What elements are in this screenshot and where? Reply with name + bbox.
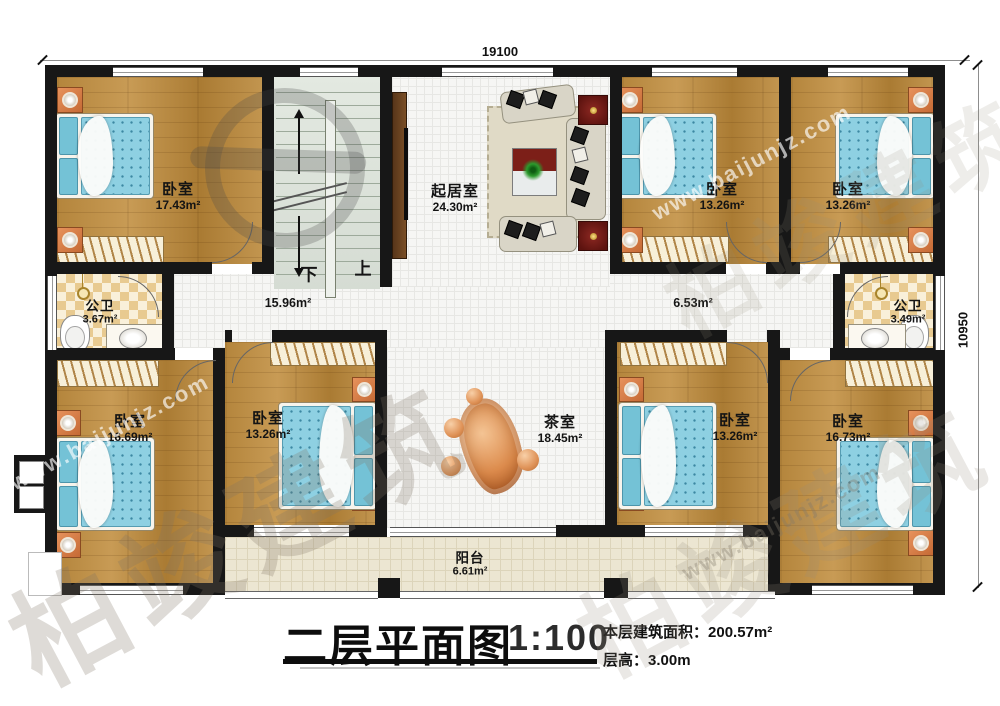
wall-segment <box>743 525 780 537</box>
accent-mat <box>578 95 608 125</box>
sink-basin-icon <box>861 328 889 349</box>
dimension-line-right <box>978 65 979 588</box>
room-name: 起居室 <box>431 184 479 201</box>
wall-segment <box>252 262 274 274</box>
bed <box>836 437 935 531</box>
wall-segment <box>45 262 212 274</box>
room-label-bedroom-bl: 卧室 16.69m² <box>108 414 153 444</box>
window <box>113 67 203 77</box>
stair-up-label: 上 <box>355 255 372 280</box>
nightstand <box>908 227 934 253</box>
room-name: 公卫 <box>891 298 926 313</box>
title-underline-shadow <box>300 667 600 669</box>
wall-segment <box>766 262 800 274</box>
room-name: 卧室 <box>246 411 291 428</box>
bed <box>618 402 717 510</box>
wall-segment <box>605 330 617 537</box>
wall-segment <box>610 65 622 274</box>
room-label-bedroom-tr2: 卧室 13.26m² <box>826 182 871 212</box>
window <box>828 67 908 77</box>
wardrobe <box>270 342 377 366</box>
floor-height-value: 3.00m <box>648 652 691 669</box>
wardrobe <box>57 360 159 387</box>
bed <box>55 437 155 531</box>
room-label-bedroom-br2: 卧室 16.73m² <box>826 414 871 444</box>
floor-area-label: 本层建筑面积： <box>603 624 708 641</box>
room-area: 17.43m² <box>156 199 201 212</box>
nightstand <box>908 87 934 113</box>
stair-arrow-up <box>298 112 300 174</box>
bed-pillows <box>912 441 931 527</box>
bed-pillows <box>354 406 373 506</box>
drawing-title: 二层平面图 <box>283 610 513 674</box>
wall-segment <box>779 65 791 274</box>
room-label-bedroom-b2: 卧室 13.26m² <box>246 411 291 441</box>
room-label-bedroom-tr1: 卧室 13.26m² <box>700 182 745 212</box>
room-label-balcony: 阳台 6.61m² <box>453 550 488 577</box>
nightstand <box>619 377 644 402</box>
sink-basin-icon <box>119 328 147 349</box>
room-area: 13.26m² <box>826 199 871 212</box>
room-name: 卧室 <box>700 182 745 199</box>
wall-segment <box>767 330 780 342</box>
room-label-tea-room: 茶室 18.45m² <box>538 415 583 445</box>
room-label-living: 起居室 24.30m² <box>431 184 479 214</box>
flue-box <box>19 486 44 509</box>
stair-down-label: 下 <box>301 261 318 286</box>
bed-sheet <box>319 405 354 507</box>
bed <box>55 113 154 199</box>
balcony-railing <box>628 591 775 599</box>
room-name: 卧室 <box>713 413 758 430</box>
wall-segment <box>162 274 174 352</box>
stone-stool <box>517 449 539 471</box>
room-name: 茶室 <box>538 415 583 432</box>
room-area: 24.30m² <box>431 201 479 214</box>
room-area: 16.73m² <box>826 431 871 444</box>
stone-stool <box>466 388 483 405</box>
corridor-area-right: 6.53m² <box>673 296 713 310</box>
exterior-step <box>28 552 62 596</box>
window <box>645 527 743 537</box>
window <box>47 276 57 350</box>
window <box>80 585 183 595</box>
drawing-scale: 1:100 <box>508 617 610 659</box>
room-area: 16.69m² <box>108 431 153 444</box>
nightstand <box>55 410 81 436</box>
window <box>254 527 349 537</box>
balcony-column <box>604 578 628 598</box>
room-label-bath-right: 公卫 3.49m² <box>891 298 926 325</box>
wall-segment <box>272 330 387 342</box>
bed-pillows <box>621 117 640 195</box>
accent-mat <box>578 221 608 251</box>
balcony-column <box>378 578 400 598</box>
wall-segment <box>833 274 845 352</box>
wall-segment <box>262 65 274 274</box>
plant-icon <box>522 159 544 181</box>
floor-area-info: 本层建筑面积：200.57m² <box>603 621 772 642</box>
nightstand <box>352 377 377 402</box>
bed-sheet <box>78 440 113 528</box>
wall-segment <box>840 262 945 274</box>
flue-box <box>19 461 44 484</box>
corridor-area-left: 15.96m² <box>265 296 312 310</box>
wall-segment <box>610 262 726 274</box>
wall-segment <box>768 330 780 595</box>
bed-sheet <box>78 116 113 197</box>
nightstand <box>908 530 934 556</box>
wall-segment <box>45 348 175 360</box>
nightstand <box>57 87 83 113</box>
window <box>300 67 358 77</box>
wardrobe <box>845 360 935 387</box>
bed-pillows <box>59 117 78 195</box>
room-name: 卧室 <box>108 414 153 431</box>
window <box>812 585 913 595</box>
wall-segment <box>605 330 727 342</box>
room-name: 卧室 <box>826 414 871 431</box>
nightstand <box>57 227 83 253</box>
room-area: 3.49m² <box>891 313 926 325</box>
nightstand <box>908 410 934 436</box>
room-label-bedroom-br1: 卧室 13.26m² <box>713 413 758 443</box>
room-label-bath-left: 公卫 3.67m² <box>83 298 118 325</box>
stair-rail <box>325 100 336 298</box>
dimension-width: 19100 <box>482 44 518 59</box>
room-name: 阳台 <box>453 550 488 565</box>
bed <box>278 402 377 510</box>
stone-stool <box>444 418 464 438</box>
window <box>442 67 553 77</box>
wall-segment <box>380 65 392 287</box>
room-name: 卧室 <box>156 182 201 199</box>
floor-height-label: 层高： <box>603 652 648 669</box>
wall-segment <box>213 525 254 537</box>
stair-arrowhead <box>294 104 304 118</box>
room-area: 3.67m² <box>83 313 118 325</box>
room-area: 13.26m² <box>246 428 291 441</box>
floor-area-value: 200.57m² <box>708 624 772 641</box>
wall-segment <box>375 330 387 537</box>
wall-segment <box>225 330 232 342</box>
room-area: 13.26m² <box>700 199 745 212</box>
wall-segment <box>775 348 790 360</box>
bed-sheet <box>640 116 675 197</box>
wall-segment <box>830 348 945 360</box>
lamp-cord <box>82 274 83 288</box>
dimension-height: 10950 <box>956 312 971 348</box>
dimension-line-top <box>40 60 970 61</box>
balcony-floor <box>225 537 775 593</box>
wall-segment <box>605 525 645 537</box>
bed-pillows <box>622 406 641 506</box>
bed-pillows <box>912 117 931 195</box>
room-area: 13.26m² <box>713 430 758 443</box>
bed-sheet <box>641 405 676 507</box>
room-area: 18.45m² <box>538 432 583 445</box>
floor-height-info: 层高：3.00m <box>603 649 691 670</box>
room-label-bedroom-tl: 卧室 17.43m² <box>156 182 201 212</box>
title-underline <box>283 659 597 664</box>
bed-sheet <box>877 440 912 528</box>
bed-sheet <box>877 116 912 197</box>
tv-icon <box>404 128 408 220</box>
floor-plan-page: 卧室 17.43m² 起居室 24.30m² 卧室 13.26m² 卧室 13.… <box>0 0 1000 706</box>
room-name: 公卫 <box>83 298 118 313</box>
stone-stool <box>441 456 461 476</box>
room-area: 6.61m² <box>453 565 488 577</box>
wall-segment <box>215 348 225 360</box>
balcony-railing <box>400 591 604 599</box>
wardrobe <box>620 342 727 366</box>
window <box>652 67 737 77</box>
room-name: 卧室 <box>826 182 871 199</box>
window <box>935 276 945 350</box>
balcony-sliding-door <box>390 527 556 537</box>
bed-pillows <box>59 441 78 527</box>
wall-segment <box>349 525 387 537</box>
balcony-railing <box>225 591 378 599</box>
